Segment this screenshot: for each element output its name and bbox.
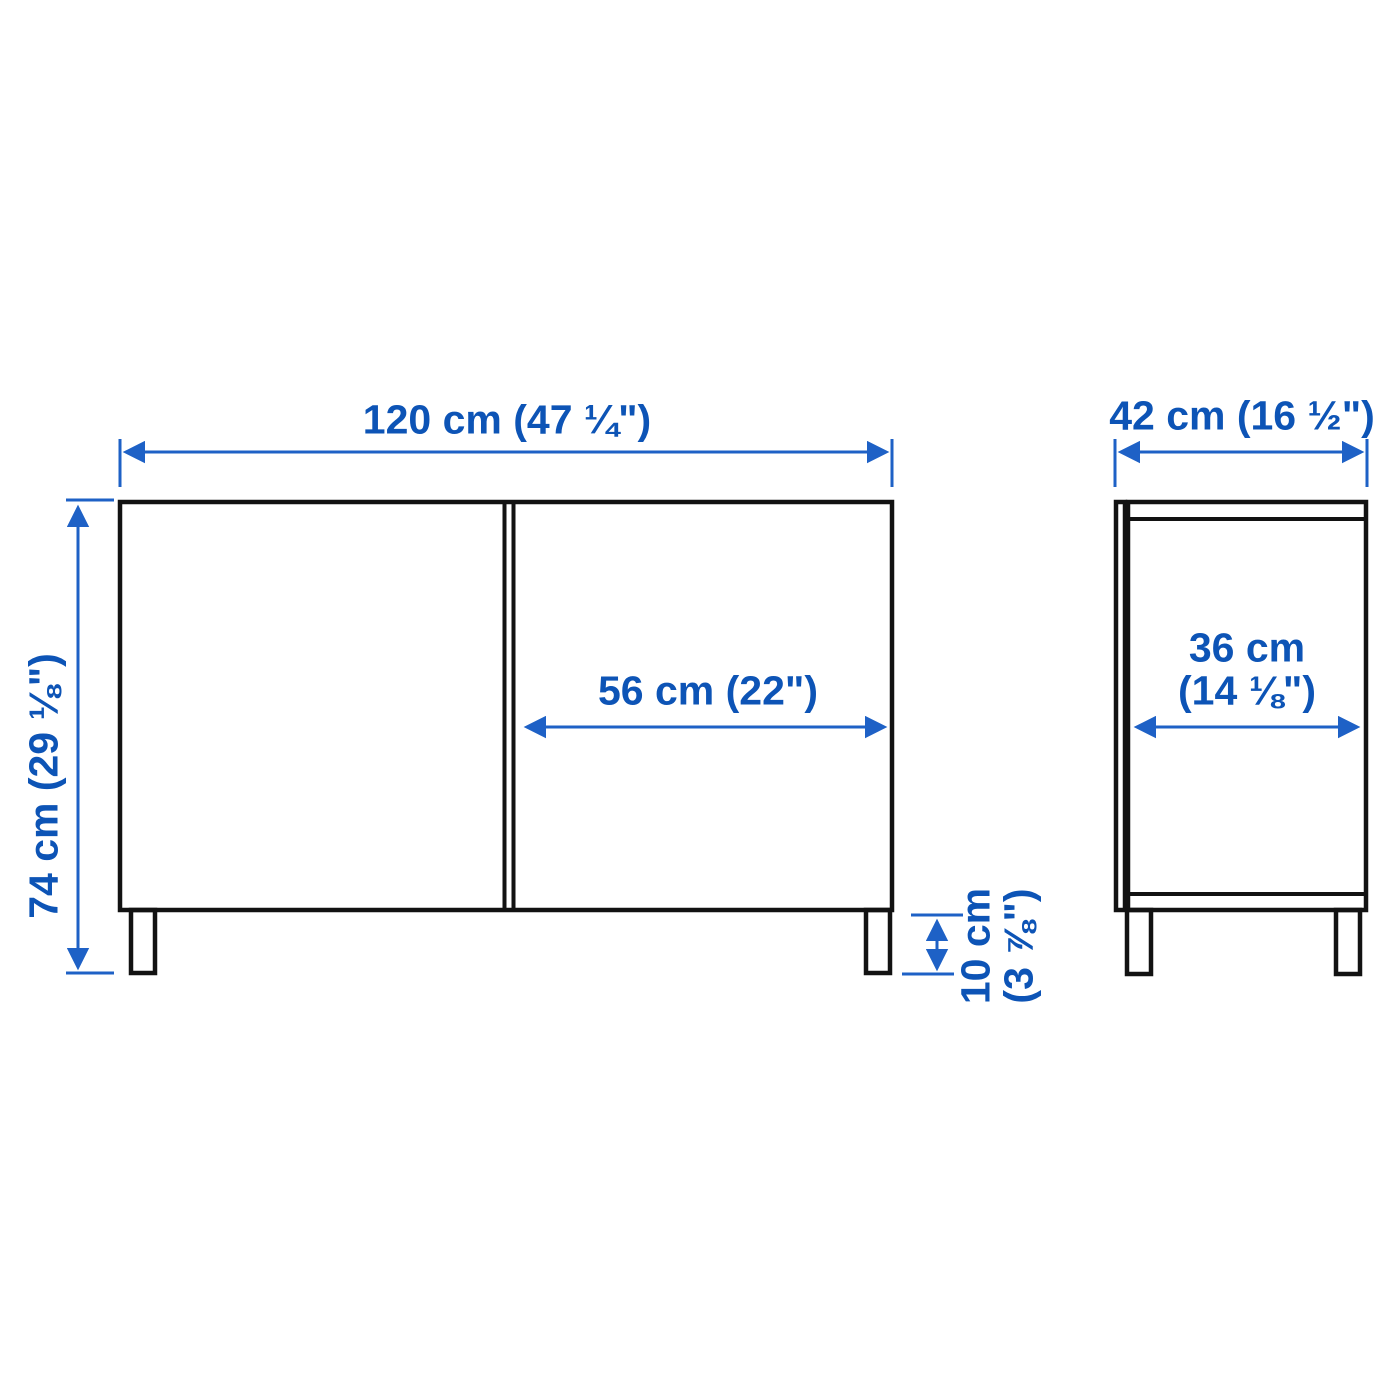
leg-height-label-line1: 10 cm — [954, 888, 997, 1004]
front-width-label: 120 cm (47 ¼") — [363, 399, 651, 442]
side-right-leg — [1336, 910, 1360, 974]
door-width-label: 56 cm (22") — [598, 670, 818, 713]
front-right-leg — [866, 910, 890, 973]
front-view-outline — [120, 502, 892, 973]
leg-height-label-line2: (3 ⅞") — [997, 888, 1040, 1004]
dimension-diagram: 120 cm (47 ¼") 42 cm (16 ½") 74 cm (29 ⅛… — [0, 0, 1400, 1400]
side-depth-dimension — [1115, 439, 1367, 487]
side-depth-label: 42 cm (16 ½") — [1109, 395, 1375, 438]
side-view-outline — [1116, 502, 1366, 974]
leg-height-label: 10 cm (3 ⅞") — [954, 888, 1039, 1004]
front-height-label: 74 cm (29 ⅛") — [23, 653, 66, 919]
front-width-dimension — [120, 439, 892, 487]
inner-depth-label: 36 cm (14 ⅛") — [1178, 626, 1316, 711]
inner-depth-label-line1: 36 cm — [1178, 626, 1316, 669]
side-left-leg — [1127, 910, 1151, 974]
front-left-leg — [131, 910, 155, 973]
inner-depth-label-line2: (14 ⅛") — [1178, 669, 1316, 712]
side-door-front-strip — [1116, 502, 1125, 910]
front-height-dimension — [66, 500, 114, 973]
